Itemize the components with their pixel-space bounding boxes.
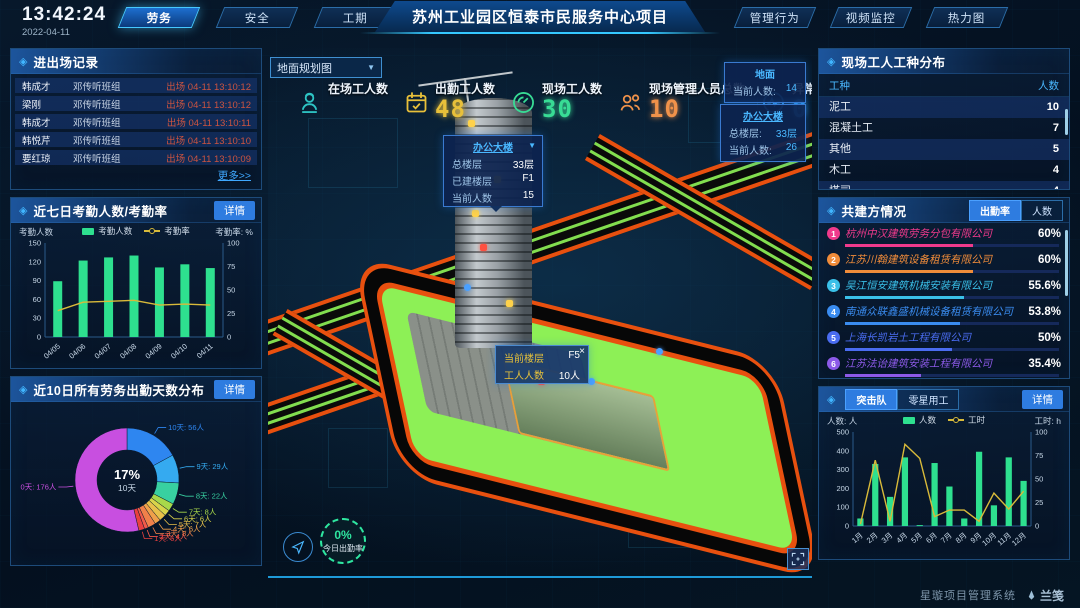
company-progress-fill [845, 322, 960, 325]
squad-bar-line-chart: 010020030040050002550751001月2月3月4月5月6月7月… [823, 426, 1061, 552]
footer: 星璇项目管理系统 兰笺 [0, 582, 1080, 608]
svg-text:8天: 22人: 8天: 22人 [196, 492, 228, 501]
company-rank-badge: 1 [827, 227, 840, 240]
panel-title: 进出场记录 [33, 52, 98, 71]
partner-company-list: 1杭州中汉建筑劳务分包有限公司60%2江苏川翰建筑设备租赁有限公司60%3吴江恒… [819, 223, 1069, 379]
main-area: ◈ 进出场记录 韩成才邓传听班组出场 04-11 13:10:12梁刚邓传听班组… [0, 40, 1080, 582]
close-icon[interactable]: × [579, 346, 585, 357]
compass-control[interactable] [283, 532, 313, 562]
company-row: 3吴江恒安建筑机械安装有限公司55.6% [827, 278, 1061, 293]
popup-row: 当前人数:14 [725, 82, 805, 99]
stat-text: 现场工人数30 [542, 80, 602, 121]
record-row: 韩悦芹邓传听班组出场 04-11 13:10:10 [15, 132, 257, 147]
company-rank-badge: 5 [827, 331, 840, 344]
top-tab[interactable]: 安全 [216, 7, 298, 28]
trade-count: 10 [1047, 97, 1059, 118]
right-tab-group: 管理行为视频监控热力图 [738, 7, 1004, 28]
attendance-chart-area: 考勤人数 考勤人数考勤率 考勤率: % 03060901201500255075… [11, 223, 261, 368]
chart-legend: 人数工时 [819, 414, 1069, 426]
worker-marker[interactable] [656, 348, 663, 355]
stat-value: 48 [435, 97, 495, 121]
trade-name: 泥工 [829, 97, 851, 118]
svg-text:100: 100 [227, 239, 240, 248]
trade-name: 塔司 [829, 181, 851, 190]
panel-attendance-chart: ◈ 近七日考勤人数/考勤率 详情 考勤人数 考勤人数考勤率 考勤率: % 030… [10, 197, 262, 369]
popup-row-label: 当前人数 [452, 190, 492, 205]
building-popup[interactable]: 办公大楼 ▼ 总楼层33层已建楼层F1当前人数15 [443, 135, 543, 207]
svg-text:400: 400 [836, 446, 849, 455]
trade-count: 4 [1053, 160, 1059, 181]
trade-name: 其他 [829, 139, 851, 160]
diamond-icon: ◈ [19, 204, 27, 217]
record-event: 出场 04-11 13:10:12 [145, 79, 257, 93]
today-attendance-gauge: 0% 今日出勤率 [320, 518, 366, 564]
svg-text:04/07: 04/07 [93, 342, 113, 361]
company-item[interactable]: 6江苏法诒建筑安装工程有限公司35.4% [819, 353, 1069, 379]
worker-marker[interactable] [464, 284, 471, 291]
top-tab[interactable]: 视频监控 [830, 7, 912, 28]
company-row: 4南通众联鑫盛机械设备租赁有限公司53.8% [827, 304, 1061, 319]
svg-text:04/08: 04/08 [118, 342, 138, 361]
current-time: 13:42:24 [22, 4, 106, 26]
panel-title: 近10日所有劳务出勤天数分布 [33, 380, 204, 399]
legend-item: 考勤人数 [82, 225, 132, 237]
svg-text:11月: 11月 [996, 531, 1014, 548]
company-rank-badge: 3 [827, 279, 840, 292]
tab-label: 工期 [343, 10, 368, 26]
popup-row: 已建楼层F1 [444, 172, 542, 189]
svg-text:50: 50 [227, 286, 235, 295]
top-bar: 13:42:24 2022-04-11 劳务安全工期 苏州工业园区恒泰市民服务中… [0, 0, 1080, 40]
scrollbar-thumb[interactable] [1065, 109, 1068, 135]
record-team: 邓传听班组 [73, 133, 145, 147]
panel-squad-chart: ◈ 突击队零星用工 详情 人数: 人 人数工时 工时: h 0100200300… [818, 386, 1070, 560]
popup-title[interactable]: 地面 [725, 63, 805, 82]
svg-text:10天: 56人: 10天: 56人 [168, 423, 204, 432]
svg-text:5月: 5月 [909, 531, 924, 545]
gauge-label: 今日出勤率 [323, 543, 363, 554]
svg-text:0: 0 [1035, 522, 1039, 531]
tab[interactable]: 零星用工 [897, 389, 959, 410]
system-name: 星璇项目管理系统 [920, 587, 1016, 603]
gauge-value: 0% [334, 528, 351, 542]
company-rank-badge: 2 [827, 253, 840, 266]
record-team: 邓传听班组 [73, 97, 145, 111]
company-row: 2江苏川翰建筑设备租赁有限公司60% [827, 252, 1061, 267]
record-event: 出场 04-11 13:10:12 [145, 97, 257, 111]
svg-text:04/10: 04/10 [169, 342, 189, 361]
svg-text:100: 100 [1035, 428, 1048, 437]
right-axis-label: 考勤率: % [215, 226, 253, 238]
scrollbar-thumb[interactable] [1065, 230, 1068, 296]
attendance-days-donut-chart: 10天: 56人9天: 29人8天: 22人7天: 8人6天: 6人5天: 7人… [15, 402, 253, 562]
company-row: 5上海长凯岩土工程有限公司50% [827, 330, 1061, 345]
svg-text:75: 75 [1035, 451, 1043, 460]
popup-row: 当前楼层F5 [496, 349, 588, 366]
left-column: ◈ 进出场记录 韩成才邓传听班组出场 04-11 13:10:12梁刚邓传听班组… [10, 48, 262, 578]
svg-text:04/11: 04/11 [195, 342, 215, 361]
record-team: 邓传听班组 [73, 151, 145, 165]
detail-button[interactable]: 详情 [214, 201, 255, 220]
popup-row-label: 工人人数 [504, 367, 544, 382]
company-name: 杭州中汉建筑劳务分包有限公司 [845, 226, 1033, 241]
popup-row-label: 当前人数: [733, 83, 776, 98]
company-progress-track [845, 270, 1059, 273]
floor-marker[interactable] [468, 120, 475, 127]
popup-row-value: 15 [523, 190, 534, 205]
floor-marker[interactable] [472, 210, 479, 217]
donut-chart-area: 10天: 56人9天: 29人8天: 22人7天: 8人6天: 6人5天: 7人… [11, 402, 261, 565]
top-tab[interactable]: 热力图 [926, 7, 1008, 28]
record-name: 韩悦芹 [15, 133, 73, 147]
trade-name: 木工 [829, 160, 851, 181]
popup-row: 工人人数10人 [496, 366, 588, 383]
company-item[interactable]: 3吴江恒安建筑机械安装有限公司55.6% [819, 275, 1069, 301]
panel-header: ◈ 近七日考勤人数/考勤率 详情 [11, 198, 261, 223]
company-progress-track [845, 348, 1059, 351]
floor-marker[interactable] [506, 300, 513, 307]
popup-row-label: 已建楼层 [452, 173, 492, 188]
tab[interactable]: 人数 [1021, 200, 1063, 221]
current-date: 2022-04-11 [22, 27, 106, 38]
svg-text:200: 200 [836, 484, 849, 493]
svg-text:7月: 7月 [939, 531, 954, 545]
left-tab-group: 劳务安全工期 [122, 7, 392, 28]
fullscreen-button[interactable] [787, 548, 809, 570]
company-progress-fill [845, 374, 921, 377]
worker-marker[interactable] [588, 378, 595, 385]
dashboard-root: 13:42:24 2022-04-11 劳务安全工期 苏州工业园区恒泰市民服务中… [0, 0, 1080, 608]
company-item[interactable]: 5上海长凯岩土工程有限公司50% [819, 327, 1069, 353]
popup-row-value: F1 [522, 173, 534, 188]
popup-row-value: 33层 [776, 125, 797, 140]
page-title: 苏州工业园区恒泰市民服务中心项目 [375, 1, 705, 32]
panel-header: ◈ 共建方情况 出勤率人数 [819, 198, 1069, 223]
svg-text:1天: 6人: 1天: 6人 [154, 534, 182, 543]
company-value: 50% [1038, 332, 1061, 344]
record-row: 梁刚邓传听班组出场 04-11 13:10:12 [15, 96, 257, 111]
record-row: 韩成才邓传听班组出场 04-11 13:10:12 [15, 78, 257, 93]
svg-text:10天: 10天 [118, 483, 136, 493]
people-icon [617, 89, 644, 116]
partner-tab-group: 出勤率人数 [969, 200, 1063, 221]
title-underline [360, 32, 720, 34]
panel-partner-companies: ◈ 共建方情况 出勤率人数 1杭州中汉建筑劳务分包有限公司60%2江苏川翰建筑设… [818, 197, 1070, 379]
svg-text:04/05: 04/05 [42, 342, 62, 361]
brand-name: 兰笺 [1040, 587, 1064, 604]
legend-swatch [144, 230, 160, 232]
records-table: 韩成才邓传听班组出场 04-11 13:10:12梁刚邓传听班组出场 04-11… [11, 74, 261, 165]
stat-item: 在场工人数 [296, 80, 388, 121]
squad-tab-group: 突击队零星用工 [845, 389, 959, 410]
company-item[interactable]: 2江苏川翰建筑设备租赁有限公司60% [819, 249, 1069, 275]
record-name: 韩成才 [15, 115, 73, 129]
company-name: 吴江恒安建筑机械安装有限公司 [845, 278, 1023, 293]
company-rank-badge: 6 [827, 357, 840, 370]
trade-row: 塔司4 [819, 181, 1069, 190]
svg-text:04/09: 04/09 [144, 342, 164, 361]
stat-text: 在场工人数 [328, 80, 388, 97]
company-row: 6江苏法诒建筑安装工程有限公司35.4% [827, 356, 1061, 371]
company-name: 南通众联鑫盛机械设备租赁有限公司 [845, 304, 1023, 319]
svg-text:6月: 6月 [924, 531, 939, 545]
legend-swatch [948, 419, 964, 421]
panel-header: ◈ 现场工人工种分布 [819, 49, 1069, 74]
building-popup-rows: 总楼层33层已建楼层F1当前人数15 [444, 155, 542, 206]
attendance-bar-line-chart: 0306090120150025507510004/0504/0604/0704… [15, 237, 253, 363]
legend-label: 考勤人数 [98, 225, 132, 237]
svg-text:8月: 8月 [954, 531, 969, 545]
diamond-icon: ◈ [19, 55, 27, 68]
legend-swatch [903, 417, 915, 424]
record-name: 韩成才 [15, 79, 73, 93]
record-row: 要红琼邓传听班组出场 04-11 13:10:09 [15, 150, 257, 165]
floor-popup[interactable]: × 当前楼层F5工人人数10人 [495, 345, 589, 384]
svg-text:30: 30 [33, 314, 41, 323]
company-item[interactable]: 1杭州中汉建筑劳务分包有限公司60% [819, 223, 1069, 249]
company-name: 上海长凯岩土工程有限公司 [845, 330, 1033, 345]
popup-row-value: 33层 [513, 156, 534, 171]
tab[interactable]: 突击队 [845, 389, 897, 410]
company-progress-track [845, 374, 1059, 377]
bg-deco-square [328, 428, 388, 488]
column-header-count: 人数 [1038, 78, 1059, 93]
legend-label: 人数 [919, 414, 936, 426]
top-tab[interactable]: 管理行为 [734, 7, 816, 28]
trade-row: 其他5 [819, 139, 1069, 160]
office-tower-info-popup[interactable]: 办公大楼总楼层:33层当前人数:26 [720, 104, 806, 162]
site-area [373, 278, 802, 558]
svg-text:25: 25 [227, 309, 235, 318]
svg-text:9天: 29人: 9天: 29人 [197, 462, 229, 471]
panel-title: 现场工人工种分布 [841, 52, 945, 71]
legend-item: 考勤率 [144, 225, 190, 237]
svg-text:4月: 4月 [894, 531, 909, 545]
record-name: 梁刚 [15, 97, 73, 111]
record-event: 出场 04-11 13:10:09 [145, 151, 257, 165]
diamond-icon: ◈ [19, 383, 27, 396]
popup-row-label: 当前人数: [729, 142, 772, 157]
panel-attendance-days-distribution: ◈ 近10日所有劳务出勤天数分布 详情 10天: 56人9天: 29人8天: 2… [10, 376, 262, 566]
svg-text:500: 500 [836, 428, 849, 437]
top-tab[interactable]: 劳务 [118, 7, 200, 28]
svg-text:17%: 17% [114, 467, 140, 482]
tab-label: 管理行为 [750, 10, 800, 26]
diamond-icon: ◈ [827, 393, 835, 406]
panel-title: 近七日考勤人数/考勤率 [33, 201, 167, 220]
tab-label: 劳务 [147, 10, 172, 26]
stat-label: 在场工人数 [328, 80, 388, 97]
company-progress-fill [845, 348, 952, 351]
svg-text:90: 90 [33, 276, 41, 285]
legend-label: 考勤率 [164, 225, 190, 237]
popup-row: 当前人数:26 [721, 141, 805, 158]
svg-text:2月: 2月 [865, 531, 880, 545]
page-title-text: 苏州工业园区恒泰市民服务中心项目 [412, 6, 668, 27]
trade-row: 泥工10 [819, 97, 1069, 118]
stat-text: 出勤工人数48 [435, 80, 495, 121]
view-select-dropdown[interactable]: 地面规划图 ▼ [270, 57, 382, 78]
tab-label: 热力图 [948, 10, 986, 26]
company-progress-track [845, 296, 1059, 299]
trades-table: 泥工10混凝土工7其他5木工4塔司4 [819, 97, 1069, 190]
panel-header: ◈ 近10日所有劳务出勤天数分布 详情 [11, 377, 261, 402]
tab-label: 视频监控 [846, 10, 896, 26]
trade-row: 木工4 [819, 160, 1069, 181]
svg-text:120: 120 [28, 257, 41, 266]
svg-text:04/06: 04/06 [67, 342, 87, 361]
company-progress-fill [845, 270, 973, 273]
company-value: 35.4% [1028, 358, 1061, 370]
popup-row-label: 总楼层 [452, 156, 482, 171]
svg-text:25: 25 [1035, 498, 1043, 507]
squad-chart-area: 人数: 人 人数工时 工时: h 01002003004005000255075… [819, 412, 1069, 559]
view-select-value: 地面规划图 [277, 60, 332, 76]
record-name: 要红琼 [15, 151, 73, 165]
chevron-down-icon[interactable]: ▼ [528, 141, 536, 150]
trade-count: 7 [1053, 118, 1059, 139]
record-team: 邓传听班组 [73, 79, 145, 93]
svg-text:150: 150 [28, 239, 41, 248]
clock: 13:42:24 2022-04-11 [22, 4, 106, 38]
detail-button[interactable]: 详情 [1022, 390, 1063, 409]
panel-header: ◈ 进出场记录 [11, 49, 261, 74]
company-value: 60% [1038, 254, 1061, 266]
floor-marker[interactable] [480, 244, 487, 251]
column-header-trade: 工种 [829, 78, 850, 93]
panel-header: ◈ 突击队零星用工 详情 [819, 387, 1069, 412]
legend-item: 人数 [903, 414, 936, 426]
trades-table-header: 工种 人数 [819, 74, 1069, 97]
trade-count: 5 [1053, 139, 1059, 160]
svg-text:0: 0 [845, 522, 849, 531]
svg-text:0: 0 [37, 333, 41, 342]
chevron-down-icon: ▼ [367, 63, 375, 72]
panel-entry-exit-records: ◈ 进出场记录 韩成才邓传听班组出场 04-11 13:10:12梁刚邓传听班组… [10, 48, 262, 190]
diamond-icon: ◈ [827, 55, 835, 68]
trade-count: 4 [1053, 181, 1059, 190]
company-progress-fill [845, 296, 964, 299]
popup-row-value: 26 [786, 142, 797, 157]
diamond-icon: ◈ [827, 204, 835, 217]
popup-row-value: 14 [786, 83, 797, 98]
popup-row: 总楼层33层 [444, 155, 542, 172]
map-viewport[interactable]: 地面规划图 ▼ 在场工人数出勤工人数48现场工人数30现场管理人员总数10异常出… [268, 48, 812, 578]
right-column: ◈ 现场工人工种分布 工种 人数 泥工10混凝土工7其他5木工4塔司4 ◈ 共建… [818, 48, 1070, 578]
company-name: 江苏法诒建筑安装工程有限公司 [845, 356, 1023, 371]
popup-row-value: 10人 [559, 367, 580, 382]
svg-text:60: 60 [33, 295, 41, 304]
popup-row: 总楼层:33层 [721, 124, 805, 141]
record-team: 邓传听班组 [73, 115, 145, 129]
company-value: 60% [1038, 228, 1061, 240]
floor-popup-rows: 当前楼层F5工人人数10人 [496, 346, 588, 383]
bg-deco-square [308, 118, 398, 188]
panel-worker-trades: ◈ 现场工人工种分布 工种 人数 泥工10混凝土工7其他5木工4塔司4 [818, 48, 1070, 190]
more-link[interactable]: 更多>> [11, 168, 251, 183]
popup-title[interactable]: 办公大楼 [721, 105, 805, 124]
stat-item: 出勤工人数48 [403, 80, 495, 121]
trade-row: 混凝土工7 [819, 118, 1069, 139]
svg-text:75: 75 [227, 262, 235, 271]
compass-arrow-icon [289, 538, 307, 556]
worker-icon [296, 89, 323, 116]
svg-text:300: 300 [836, 465, 849, 474]
popup-row: 当前人数15 [444, 189, 542, 206]
stat-value: 30 [542, 97, 602, 121]
record-event: 出场 04-11 13:10:11 [145, 115, 257, 129]
svg-text:12月: 12月 [1010, 531, 1028, 548]
svg-text:50: 50 [1035, 475, 1043, 484]
svg-text:10月: 10月 [980, 531, 998, 548]
popup-row-label: 当前楼层 [504, 350, 544, 365]
detail-button[interactable]: 详情 [214, 380, 255, 399]
record-event: 出场 04-11 13:10:10 [145, 133, 257, 147]
gauge-icon [510, 89, 537, 116]
panel-title: 共建方情况 [841, 201, 906, 220]
record-row: 韩成才邓传听班组出场 04-11 13:10:11 [15, 114, 257, 129]
calendar-check-icon [403, 89, 430, 116]
company-progress-track [845, 322, 1059, 325]
trade-name: 混凝土工 [829, 118, 873, 139]
tab-label: 安全 [245, 10, 270, 26]
svg-text:3月: 3月 [880, 531, 895, 545]
svg-text:0天: 176人: 0天: 176人 [21, 482, 57, 491]
svg-text:0: 0 [227, 333, 231, 342]
popup-row-label: 总楼层: [729, 125, 762, 140]
fullscreen-icon [790, 551, 806, 567]
tab[interactable]: 出勤率 [969, 200, 1021, 221]
company-value: 53.8% [1028, 306, 1061, 318]
company-value: 55.6% [1028, 280, 1061, 292]
company-item[interactable]: 4南通众联鑫盛机械设备租赁有限公司53.8% [819, 301, 1069, 327]
stat-item: 现场工人数30 [510, 80, 602, 121]
legend-label: 工时 [968, 414, 985, 426]
company-row: 1杭州中汉建筑劳务分包有限公司60% [827, 226, 1061, 241]
svg-text:1月: 1月 [850, 531, 865, 545]
company-progress-fill [845, 244, 973, 247]
right-axis-label: 工时: h [1035, 415, 1061, 427]
svg-text:100: 100 [836, 503, 849, 512]
brand-icon [1026, 589, 1037, 601]
brand-logo: 兰笺 [1026, 587, 1064, 604]
legend-swatch [82, 228, 94, 235]
company-name: 江苏川翰建筑设备租赁有限公司 [845, 252, 1033, 267]
ground-info-popup[interactable]: 地面当前人数:14 [724, 62, 806, 103]
legend-item: 工时 [948, 414, 985, 426]
company-rank-badge: 4 [827, 305, 840, 318]
company-progress-track [845, 244, 1059, 247]
